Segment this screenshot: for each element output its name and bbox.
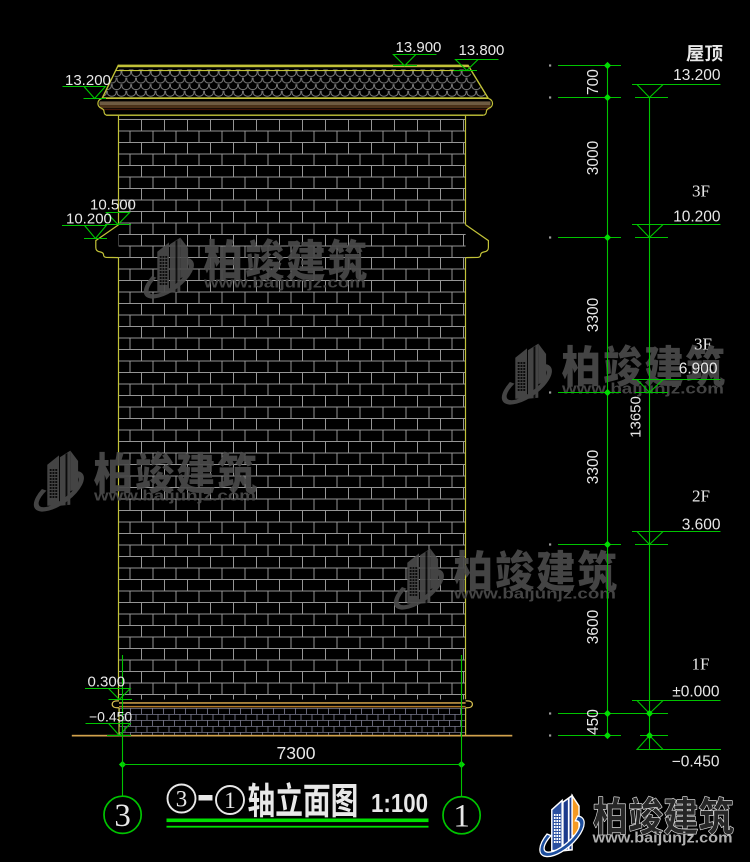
svg-text:3.600: 3.600 <box>682 517 721 534</box>
svg-text:3000: 3000 <box>585 140 602 175</box>
svg-text:10.200: 10.200 <box>66 211 112 228</box>
svg-text:3300: 3300 <box>585 297 602 332</box>
svg-text:0.300: 0.300 <box>88 674 126 691</box>
svg-text:1F: 1F <box>692 655 710 674</box>
svg-text:3F: 3F <box>692 182 710 201</box>
svg-text:13.200: 13.200 <box>65 72 111 89</box>
svg-text:10.200: 10.200 <box>673 209 721 226</box>
svg-text:13.200: 13.200 <box>673 67 721 84</box>
svg-text:7300: 7300 <box>277 743 316 763</box>
svg-text:13.900: 13.900 <box>396 39 442 56</box>
svg-text:3: 3 <box>176 787 188 812</box>
svg-text:±0.000: ±0.000 <box>672 684 720 701</box>
svg-text:−0.450: −0.450 <box>672 754 720 771</box>
svg-text:3F: 3F <box>694 335 712 354</box>
svg-text:450: 450 <box>585 709 602 735</box>
svg-text:700: 700 <box>585 69 602 95</box>
svg-text:13650: 13650 <box>628 396 645 438</box>
svg-text:1:100: 1:100 <box>371 788 428 818</box>
svg-text:13.800: 13.800 <box>459 42 505 59</box>
svg-text:6.900: 6.900 <box>679 361 718 378</box>
svg-text:www.baijunjz.com: www.baijunjz.com <box>591 830 732 847</box>
svg-text:3: 3 <box>114 798 131 834</box>
svg-text:3300: 3300 <box>585 449 602 484</box>
svg-text:1: 1 <box>453 798 470 834</box>
svg-text:−0.450: −0.450 <box>89 709 132 725</box>
svg-text:1: 1 <box>224 788 236 813</box>
svg-text:3600: 3600 <box>585 609 602 644</box>
svg-text:2F: 2F <box>692 487 710 506</box>
